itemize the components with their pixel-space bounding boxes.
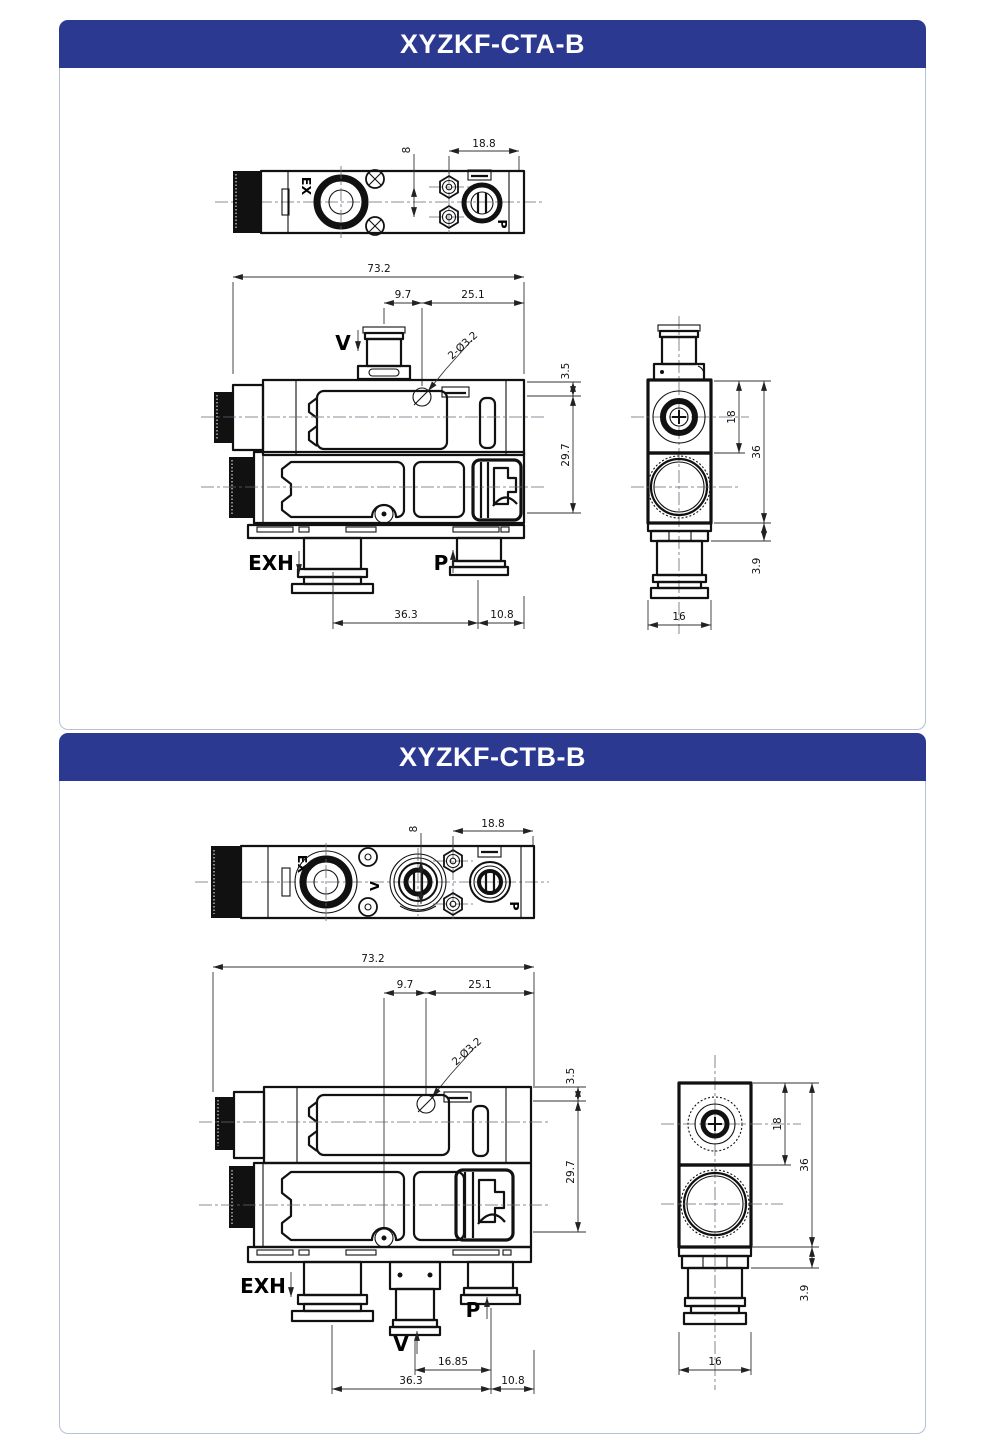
- dim-36: 36: [751, 445, 763, 459]
- dim-16-85: 16.85: [438, 1356, 468, 1368]
- datasheet-page: XYZKF-CTA-B EX 8: [0, 0, 984, 1454]
- dim-18-8: 18.8: [481, 818, 504, 830]
- panel-body: EX 8 18.8 P: [59, 68, 926, 730]
- top-view: EX V 8 18.8: [195, 818, 549, 921]
- front-view: 73.2 9.7 25.1 V 2-Ø3.2: [201, 263, 581, 629]
- dim-36-3: 36.3: [399, 1375, 422, 1387]
- dim-3-5: 3.5: [560, 363, 572, 380]
- panel-title: XYZKF-CTB-B: [399, 742, 586, 773]
- label-ex: EX: [299, 177, 314, 196]
- dim-16: 16: [708, 1356, 722, 1368]
- dim-18: 18: [772, 1117, 784, 1130]
- dim-8: 8: [401, 147, 413, 154]
- drawing-ctb-b: EX V 8 18.8: [60, 781, 926, 1433]
- hole-callout: 2-Ø3.2: [446, 329, 480, 362]
- port-label-v: V: [335, 331, 351, 355]
- label-p: P: [507, 901, 522, 910]
- panel-ctb-b: XYZKF-CTB-B EX V: [59, 733, 926, 1434]
- panel-title: XYZKF-CTA-B: [400, 29, 585, 60]
- dim-9-7: 9.7: [397, 979, 414, 991]
- dim-29-7: 29.7: [560, 443, 572, 466]
- panel-body: EX V 8 18.8: [59, 781, 926, 1434]
- dim-3-5: 3.5: [565, 1068, 577, 1085]
- dim-16: 16: [672, 611, 686, 623]
- side-view: 18 36 3.9 16: [661, 1055, 819, 1390]
- panel-header: XYZKF-CTA-B: [59, 20, 926, 68]
- port-label-exh: EXH: [240, 1274, 286, 1298]
- dim-36-3: 36.3: [394, 609, 417, 621]
- dim-18-8: 18.8: [472, 138, 495, 150]
- dim-10-8: 10.8: [501, 1375, 524, 1387]
- port-label-p: P: [466, 1298, 481, 1322]
- dim-36: 36: [799, 1158, 811, 1172]
- dim-73-2: 73.2: [367, 263, 390, 275]
- hole-callout: 2-Ø3.2: [450, 1035, 484, 1068]
- front-view: 73.2 9.7 25.1 2-Ø3.2 3.5 29.7: [199, 953, 586, 1394]
- dim-3-9: 3.9: [751, 558, 763, 575]
- side-view: 18 36 3.9 16: [631, 316, 771, 634]
- port-label-v: V: [393, 1332, 409, 1356]
- top-view: EX 8 18.8 P: [215, 138, 543, 238]
- panel-cta-b: XYZKF-CTA-B EX 8: [59, 20, 926, 730]
- dim-10-8: 10.8: [490, 609, 513, 621]
- port-label-exh: EXH: [248, 551, 294, 575]
- panel-header: XYZKF-CTB-B: [59, 733, 926, 781]
- dim-29-7: 29.7: [565, 1160, 577, 1183]
- label-p: P: [495, 219, 510, 228]
- drawing-cta-b: EX 8 18.8 P: [60, 68, 926, 729]
- dim-9-7: 9.7: [395, 289, 412, 301]
- dim-25-1: 25.1: [468, 979, 491, 991]
- dim-3-9: 3.9: [799, 1285, 811, 1302]
- dim-25-1: 25.1: [461, 289, 484, 301]
- port-label-p: P: [434, 551, 449, 575]
- label-v-marker: V: [367, 881, 382, 891]
- dim-73-2: 73.2: [361, 953, 384, 965]
- dim-8: 8: [408, 826, 420, 833]
- dim-18: 18: [726, 410, 738, 423]
